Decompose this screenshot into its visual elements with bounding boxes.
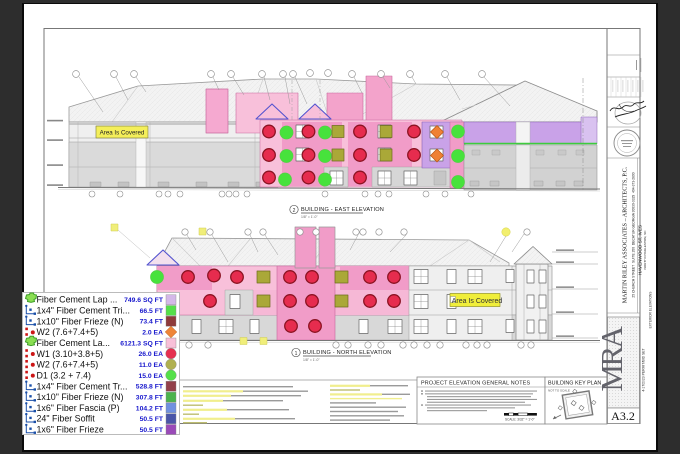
svg-text:1x4" Fiber Cement Tr...: 1x4" Fiber Cement Tr... [37,381,128,391]
svg-text:26.0 EA: 26.0 EA [138,351,163,358]
svg-text:W2 (7.6+7.4+5): W2 (7.6+7.4+5) [37,360,99,370]
svg-text:1x10" Fiber Frieze (N): 1x10" Fiber Frieze (N) [37,392,124,402]
svg-text:2.0 EA: 2.0 EA [142,330,163,337]
svg-text:528.8 FT: 528.8 FT [136,384,164,391]
svg-text:749.6 SQ FT: 749.6 SQ FT [124,297,164,304]
svg-text:307.8 FT: 307.8 FT [136,395,164,402]
svg-text:66.5 FT: 66.5 FT [140,308,164,315]
svg-text:73.4 FT: 73.4 FT [140,319,164,326]
svg-text:15.0 EA: 15.0 EA [138,373,163,380]
svg-text:W1 (3.10+3.8+5): W1 (3.10+3.8+5) [37,349,104,359]
svg-text:6121.3 SQ FT: 6121.3 SQ FT [120,340,164,347]
svg-text:Fiber Cement Lap ...: Fiber Cement Lap ... [37,295,118,305]
svg-text:1x6" Fiber Frieze: 1x6" Fiber Frieze [37,425,104,435]
svg-text:D1 (3.2 + 7.4): D1 (3.2 + 7.4) [37,370,92,380]
svg-text:1x4" Fiber Cement Tri...: 1x4" Fiber Cement Tri... [37,306,130,316]
svg-text:50.5 FT: 50.5 FT [140,416,164,423]
svg-text:11.0 EA: 11.0 EA [139,362,163,369]
svg-text:1x10" Fiber Frieze (N): 1x10" Fiber Frieze (N) [37,316,124,326]
svg-text:1x6" Fiber Fascia (P): 1x6" Fiber Fascia (P) [37,403,120,413]
svg-text:Fiber Cement La...: Fiber Cement La... [37,338,111,348]
svg-text:104.2 FT: 104.2 FT [136,405,164,412]
svg-text:50.5 FT: 50.5 FT [140,427,164,434]
svg-text:W2 (7.6+7.4+5): W2 (7.6+7.4+5) [37,327,99,337]
svg-text:24" Fiber Soffit: 24" Fiber Soffit [37,414,96,424]
